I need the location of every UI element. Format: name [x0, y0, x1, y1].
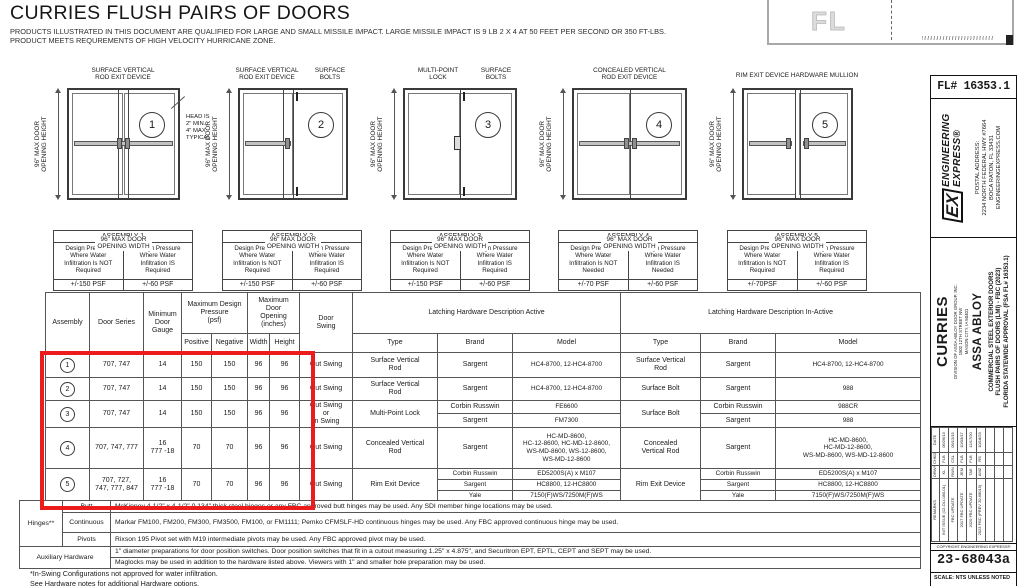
project-desc-line1: COMMERCIAL STEEL EXTERIOR DOORS: [988, 255, 996, 407]
rev-remarks: INIT ISSUE (12-OLI-080-01): [940, 479, 949, 542]
cell-inactive-brand: Sargent: [701, 480, 776, 491]
surface-bolt-bottom: [463, 187, 465, 196]
cell-inactive-type: Rim Exit Device: [621, 469, 701, 501]
cell-inactive-model: 988: [776, 378, 921, 401]
width-dimension-label: 96" MAX DOOR OPENING WIDTH: [265, 236, 321, 251]
col-header-inactive: Latching Hardware Description In-Active: [621, 293, 921, 334]
rev-chkd: CSL: [949, 453, 958, 466]
scale-note: SCALE: NTS UNLESS NOTED: [931, 573, 1016, 586]
address-line1: 2234 NORTH FEDERAL HWY #7664: [982, 120, 989, 216]
arrowhead: [226, 195, 232, 200]
col-header-max-pressure: Maximum Design Pressure (psf): [182, 293, 248, 334]
col-header-negative: Negative: [212, 334, 248, 353]
col-header-height: Height: [270, 334, 300, 353]
revision-row: 2017 FBC UPDATE JEM FLB 10/03/17: [958, 428, 967, 542]
arrowhead: [55, 195, 61, 200]
footnote-line-1: *In-Swing Configurations not approved fo…: [30, 569, 218, 579]
cell-inactive-brand: Sargent: [701, 428, 776, 469]
client-city: MASON CITY, IA 50401: [964, 284, 969, 379]
pressure-no-water-value: +/-150 PSF: [223, 280, 293, 291]
rev-drwn: TAE: [967, 466, 976, 479]
col-header-width: Width: [248, 334, 270, 353]
title-block: FL# 16353.1 EX ENGINEERING EXPRESS® POST…: [930, 75, 1017, 586]
diagram3-door: 3: [403, 88, 517, 200]
col-header-model-active: Model: [513, 334, 621, 353]
col-header-active: Latching Hardware Description Active: [353, 293, 621, 334]
height-dimension-line: [229, 90, 230, 198]
diagram-assembly-2: SURFACE VERTICAL ROD EXIT DEVICE SURFACE…: [211, 60, 386, 232]
address-line2: BOCA RATON, FL 33431: [989, 120, 996, 216]
fl-approval-number: FL# 16353.1: [931, 76, 1016, 99]
col-header-min-gauge: Minimum Door Gauge: [144, 293, 182, 353]
pressure-water-value: +/-60 PSF: [293, 280, 362, 291]
drawing-number: 23-68043a: [931, 551, 1016, 573]
cell-inactive-model: 7150(F)WS/7250M(F)WS: [776, 491, 921, 501]
pivots-text: Rixson 195 Pivot set with M19 intermedia…: [111, 533, 921, 547]
pressure-no-water-value: +/-150 PSF: [54, 280, 124, 291]
diagram4-door: 4: [572, 88, 687, 200]
engineering-express-logo: EX ENGINEERING EXPRESS®: [942, 114, 963, 222]
fl-watermark: FL: [811, 6, 847, 37]
diagram-assembly-5: RIM EXIT DEVICE HARDWARE MULLION 5 96" M…: [715, 60, 890, 232]
auxiliary-text-2: Maglocks may be used in addition to the …: [111, 558, 921, 569]
diagram3-hardware-label-left: MULTI-POINT LOCK: [398, 67, 478, 82]
pressure-no-water-value: +/-70 PSF: [559, 280, 629, 291]
exit-device-hardware: [125, 138, 130, 149]
cell-inactive-model: 988: [776, 414, 921, 428]
height-dimension-line: [394, 90, 395, 198]
cell-active-model: FM7300: [513, 414, 621, 428]
col-header-door-series: Door Series: [90, 293, 144, 353]
cell-active-model: 7150(F)WS/7250M(F)WS: [513, 491, 621, 501]
rev-chkd: FLB: [940, 453, 949, 466]
cell-inactive-brand: Corbin Russwin: [701, 469, 776, 480]
revision-table: REMARKS DRWN CHKD DATE INIT ISSUE (12-OL…: [931, 427, 1013, 542]
project-desc-line3: FLORIDA STATEWIDE APPROVAL (FSA FL# 1635…: [1003, 255, 1011, 407]
footnotes: *In-Swing Configurations not approved fo…: [30, 569, 218, 586]
col-header-positive: Positive: [182, 334, 212, 353]
client-address: DIVISION OF ASSA ABLOY DOOR GROUP, INC. …: [953, 284, 969, 379]
revision-row: INIT ISSUE (12-OLI-080-01) KL FLB 06/26/…: [940, 428, 949, 542]
rev-drwn: KL: [940, 466, 949, 479]
exit-device-hardware: [285, 138, 290, 149]
revision-row-empty: [1003, 428, 1012, 542]
col-header-type-active: Type: [353, 334, 438, 353]
ee-name-line2: EXPRESS®: [953, 114, 964, 187]
height-dimension-line: [563, 90, 564, 198]
diagram-assembly-4: CONCEALED VERTICAL ROD EXIT DEVICE 4 96"…: [545, 60, 720, 232]
diagram4-hardware-label: CONCEALED VERTICAL ROD EXIT DEVICE: [582, 67, 677, 82]
height-dimension-line: [58, 90, 59, 198]
col-header-brand-active: Brand: [438, 334, 513, 353]
cell-active-brand: Sargent: [438, 353, 513, 378]
auxiliary-row-2: Maglocks may be used in addition to the …: [20, 558, 921, 569]
rev-date: 09/12/15: [949, 428, 958, 453]
cell-active-brand: Sargent: [438, 378, 513, 401]
height-dimension-label: 96" MAX DOOR OPENING HEIGHT: [709, 88, 729, 200]
exit-device-hardware: [632, 138, 637, 149]
pivots-label: Pivots: [63, 533, 111, 547]
cell-active-brand: Sargent: [438, 480, 513, 491]
cell-active-type: Concealed Vertical Rod: [353, 428, 438, 469]
col-header-door-swing: Door Swing: [300, 293, 353, 353]
col-header-max-opening: Maximum Door Opening (inches): [248, 293, 300, 334]
height-dimension-label: 96" MAX DOOR OPENING HEIGHT: [205, 88, 225, 200]
cell-active-type: Rim Exit Device: [353, 469, 438, 501]
surface-bolt-top: [296, 92, 298, 101]
arrowhead: [391, 88, 397, 93]
cell-inactive-type: Concealed Vertical Rod: [621, 428, 701, 469]
rev-chkd: FLB: [967, 453, 976, 466]
assembly-number-bubble: 2: [308, 112, 334, 138]
seal-box: FL: [767, 0, 1014, 45]
arrowhead: [560, 195, 566, 200]
diagram5-door: 5: [742, 88, 853, 200]
cell-active-model: HC-MD-8600, HC-12-8600, HC-MD-12-8600, W…: [513, 428, 621, 469]
cell-inactive-type: Surface Bolt: [621, 378, 701, 401]
cell-inactive-brand: Yale: [701, 491, 776, 501]
footnote-line-2: See Hardware notes for additional Hardwa…: [30, 579, 218, 586]
exit-device-hardware: [624, 138, 629, 149]
rev-remarks: 2023 FBC (PREV 20-68015): [976, 479, 985, 542]
width-dimension-label: 96" MAX DOOR OPENING WIDTH: [432, 236, 488, 251]
col-header-type-inactive: Type: [621, 334, 701, 353]
width-dimension-label: 96" MAX DOOR OPENING WIDTH: [95, 236, 151, 251]
cell-inactive-model: 988CR: [776, 401, 921, 414]
cell-inactive-model: HC8800, 12-HC8800: [776, 480, 921, 491]
col-header-brand-inactive: Brand: [701, 334, 776, 353]
seal-divider-dashed-line: [891, 0, 892, 40]
rev-drwn: AMZ: [976, 466, 985, 479]
cell-inactive-type: Surface Bolt: [621, 401, 701, 428]
diagram-assembly-1: SURFACE VERTICAL ROD EXIT DEVICE 1 96" M…: [40, 60, 215, 232]
project-desc-line2: FLUSH PAIRS OF DOORS (LMI) - FBC (2023): [995, 255, 1003, 407]
cell-active-brand: Corbin Russwin: [438, 401, 513, 414]
revision-row: 2020 FBC UPDATE TAE FLB 12/17/20: [967, 428, 976, 542]
assembly-number-bubble: 4: [646, 112, 672, 138]
cell-active-model: HC8800, 12-HC8800: [513, 480, 621, 491]
rim-exit-device: [804, 138, 809, 149]
cell-inactive-model: HC-MD-8600, HC-MD-12-8600, WS-MD-8600, W…: [776, 428, 921, 469]
rev-remarks: 2017 FBC UPDATE: [958, 479, 967, 542]
client-block: CURRIES DIVISION OF ASSA ABLOY DOOR GROU…: [931, 238, 1016, 427]
subtitle-line-1: PRODUCTS ILLUSTRATED IN THIS DOCUMENT AR…: [10, 27, 666, 36]
multi-point-lock: [454, 136, 461, 150]
push-bar: [579, 141, 680, 146]
door-leaf-right: [293, 93, 343, 195]
cell-inactive-brand: Sargent: [701, 414, 776, 428]
cell-active-model: HC4-8700, 12-HC4-8700: [513, 378, 621, 401]
cell-active-model: ED5200S(A) x M107: [513, 469, 621, 480]
arrowhead: [226, 88, 232, 93]
rev-date: 10/18/23: [976, 428, 985, 453]
cell-inactive-brand: Sargent: [701, 378, 776, 401]
rev-header-remarks: REMARKS: [932, 479, 940, 542]
curries-logo: CURRIES: [935, 296, 950, 367]
revision-row: FBC UPDATE RWN CSL 09/12/15: [949, 428, 958, 542]
assembly-number-bubble: 1: [139, 112, 165, 138]
cell-inactive-model: HC4-8700, 12-HC4-8700: [776, 353, 921, 378]
cell-inactive-model: ED5200S(A) x M107: [776, 469, 921, 480]
subtitle-line-2: PRODUCT MEETS REQUREMENTS OF HIGH VELOCI…: [10, 36, 666, 45]
cell-active-brand: Sargent: [438, 414, 513, 428]
cell-active-model: HC4-8700, 12-HC4-8700: [513, 353, 621, 378]
cell-active-brand: Corbin Russwin: [438, 469, 513, 480]
cell-active-model: FE6600: [513, 401, 621, 414]
arrowhead: [730, 195, 736, 200]
door-leaf-right: [460, 93, 512, 195]
revision-row-empty: [994, 428, 1003, 542]
continuous-label: Continuous: [63, 513, 111, 533]
pressure-no-water-value: +/-150 PSF: [391, 280, 461, 291]
revision-block: REMARKS DRWN CHKD DATE INIT ISSUE (12-OL…: [931, 427, 1016, 544]
meeting-stile-line: [293, 90, 294, 198]
pressure-water-value: +/-60 PSF: [798, 280, 867, 291]
drawing-sheet: CURRIES FLUSH PAIRS OF DOORS PRODUCTS IL…: [0, 0, 1024, 586]
rev-date: 06/26/13: [940, 428, 949, 453]
hinges-pivots-row: Pivots Rixson 195 Pivot set with M19 int…: [20, 533, 921, 547]
cell-inactive-brand: Corbin Russwin: [701, 401, 776, 414]
rev-date: 12/17/20: [967, 428, 976, 453]
rev-drwn: JEM: [958, 466, 967, 479]
copyright-line: COPYRIGHT ENGINEERING EXPRESS®: [931, 544, 1016, 551]
diagram2-door: 2: [238, 88, 348, 200]
cell-active-type: Multi-Point Lock: [353, 401, 438, 428]
col-header-assembly: Assembly: [46, 293, 90, 353]
engineer-address: POSTAL ADDRESS: 2234 NORTH FEDERAL HWY #…: [975, 120, 1003, 216]
pressure-water-value: +/-60 PSF: [124, 280, 193, 291]
pressure-no-water-value: +/-70PSF: [728, 280, 798, 291]
address-label: POSTAL ADDRESS:: [975, 120, 982, 216]
cell-inactive-brand: Sargent: [701, 353, 776, 378]
rev-chkd: FLB: [958, 453, 967, 466]
seal-corner-mark: [1006, 35, 1013, 45]
hardware-table: Hinges** Butt McKinney 4-1/2" x 4-1/2" 0…: [19, 500, 921, 569]
rev-header-date: DATE: [932, 428, 940, 453]
cell-active-type: Surface Vertical Rod: [353, 353, 438, 378]
cell-active-type: Surface Vertical Rod: [353, 378, 438, 401]
engineer-website: ENGINEERINGEXPRESS.COM: [996, 120, 1003, 216]
height-dimension-label: 96" MAX DOOR OPENING HEIGHT: [34, 88, 54, 200]
signature-marks: [922, 36, 994, 40]
push-bar-right: [803, 141, 846, 146]
width-dimension-label: 96" MAX DOOR OPENING WIDTH: [769, 236, 825, 251]
rev-remarks: FBC UPDATE: [949, 479, 958, 542]
revision-row-empty: [985, 428, 994, 542]
page-title: CURRIES FLUSH PAIRS OF DOORS: [10, 2, 350, 25]
diagram1-hardware-label: SURFACE VERTICAL ROD EXIT DEVICE: [78, 67, 168, 82]
arrowhead: [55, 88, 61, 93]
rev-remarks: 2020 FBC UPDATE: [967, 479, 976, 542]
arrowhead: [560, 88, 566, 93]
diagram1-door: 1: [67, 88, 180, 200]
pressure-water-value: +/-60 PSF: [629, 280, 698, 291]
pressure-water-value: +/-60 PSF: [461, 280, 530, 291]
height-dimension-label: 96" MAX DOOR OPENING HEIGHT: [539, 88, 559, 200]
revision-row: 2023 FBC (PREV 20-68015) AMZ RS 10/18/23: [976, 428, 985, 542]
rev-header-drwn: DRWN: [932, 466, 940, 479]
diagram5-hardware-label: RIM EXIT DEVICE HARDWARE MULLION: [707, 72, 887, 79]
auxiliary-text-1: 1" diameter preparations for door positi…: [111, 547, 921, 558]
continuous-text: Markar FM100, FM200, FM300, FM3500, FM10…: [111, 513, 921, 533]
diagram3-hardware-label-right: SURFACE BOLTS: [471, 67, 521, 82]
rev-chkd: RS: [976, 453, 985, 466]
surface-bolt-bottom: [296, 187, 298, 196]
push-bar: [74, 141, 173, 146]
exit-device-hardware: [117, 138, 122, 149]
door-leaf-left: [408, 93, 460, 195]
assembly-number-bubble: 5: [812, 112, 838, 138]
auxiliary-row-1: Auxiliary Hardware 1" diameter preparati…: [20, 547, 921, 558]
red-highlight-box: [40, 351, 315, 510]
cell-inactive-type: Surface Vertical Rod: [621, 353, 701, 378]
hardware-mullion: [795, 90, 801, 198]
project-description: COMMERCIAL STEEL EXTERIOR DOORS FLUSH PA…: [988, 255, 1011, 407]
rev-header-chkd: CHKD: [932, 453, 940, 466]
arrowhead: [391, 195, 397, 200]
assembly-number-bubble: 3: [475, 112, 501, 138]
engineer-block: EX ENGINEERING EXPRESS® POSTAL ADDRESS: …: [931, 99, 1016, 238]
cell-active-brand: Sargent: [438, 428, 513, 469]
height-dimension-line: [733, 90, 734, 198]
diagram2-hardware-label-right: SURFACE BOLTS: [305, 67, 355, 82]
hinges-continuous-row: Continuous Markar FM100, FM200, FM300, F…: [20, 513, 921, 533]
assa-abloy-logo: ASSA ABLOY: [972, 293, 984, 371]
rev-date: 10/03/17: [958, 428, 967, 453]
cell-active-brand: Yale: [438, 491, 513, 501]
diagram2-hardware-label-left: SURFACE VERTICAL ROD EXIT DEVICE: [222, 67, 312, 82]
rim-exit-device: [786, 138, 791, 149]
arrowhead: [730, 88, 736, 93]
rev-drwn: RWN: [949, 466, 958, 479]
auxiliary-label: Auxiliary Hardware: [20, 547, 111, 569]
surface-bolt-top: [463, 92, 465, 101]
page-subtitle: PRODUCTS ILLUSTRATED IN THIS DOCUMENT AR…: [10, 27, 666, 46]
diagram-assembly-3: MULTI-POINT LOCK SURFACE BOLTS 3 96" MAX…: [376, 60, 551, 232]
height-dimension-label: 96" MAX DOOR OPENING HEIGHT: [370, 88, 390, 200]
width-dimension-label: 96" MAX DOOR OPENING WIDTH: [601, 236, 657, 251]
ex-logo-icon: EX: [942, 189, 963, 223]
col-header-model-inactive: Model: [776, 334, 921, 353]
